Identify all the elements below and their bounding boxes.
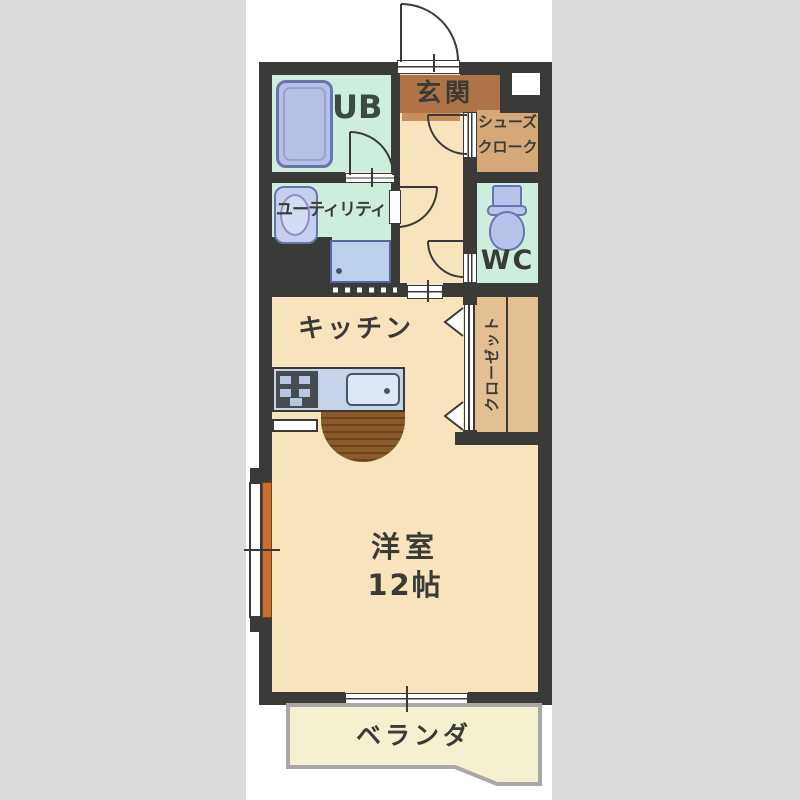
wall-wc-left [463,183,477,253]
bathtub-icon [276,80,333,168]
closet-label: クローゼット [484,299,500,429]
kitchen-counter [272,367,405,412]
ub-door-sill [345,173,395,183]
utility-label: ユーティリティ [276,201,394,220]
main-room-label: 洋室 [272,532,538,564]
wc-label: WC [477,246,538,276]
wall-top-left [259,62,397,75]
wall-cloak-wc [463,172,538,183]
sink-icon [346,373,400,406]
wall-right [538,62,552,705]
wall-bottom-left [259,692,345,705]
wall-ub-utility-left [259,172,345,183]
wall-kitchen-right [443,283,465,297]
wall-wc-closet [463,283,538,297]
wall-closet-top-bit [463,297,477,305]
folding-door-icon [464,305,475,430]
genkan-step [402,113,460,121]
wc-door-sill [463,253,477,283]
window-pane [249,482,262,618]
wall-closet-bottom [455,432,552,445]
balcony-sliding-door [345,693,468,705]
kitchen-hall-sill [407,285,443,299]
wall-hall-left-lower [391,224,400,286]
washer-pan-icon [330,240,391,283]
wall-kitchen-step [330,283,407,297]
genkan-label: 玄関 [416,79,474,107]
stove-icon [276,371,318,408]
wall-bottom-right [468,692,552,705]
wall-corner-chunk [265,237,332,297]
kitchen-label: キッチン [298,315,414,344]
shoes-cloak-label-line1: シューズ [475,114,540,131]
closet-divider-line [506,297,508,432]
wall-hall-left-upper [391,62,400,190]
main-room-size-label: 12帖 [272,570,538,602]
entrance-door-sill [397,60,460,74]
floor-plan: 玄関 シューズ クローク UB ユーティリティ WC キッチン クローゼット 洋… [0,0,800,800]
kitchen-front-bar [272,419,318,432]
veranda-label: ベランダ [288,722,540,750]
toilet-tank-icon [492,185,522,207]
shoes-cloak-label-line2: クローク [475,139,540,156]
window-cap-bottom [250,616,272,632]
unit-bath-label: UB [332,90,382,125]
window-frame-orange [262,482,272,618]
meter-box [512,73,540,95]
